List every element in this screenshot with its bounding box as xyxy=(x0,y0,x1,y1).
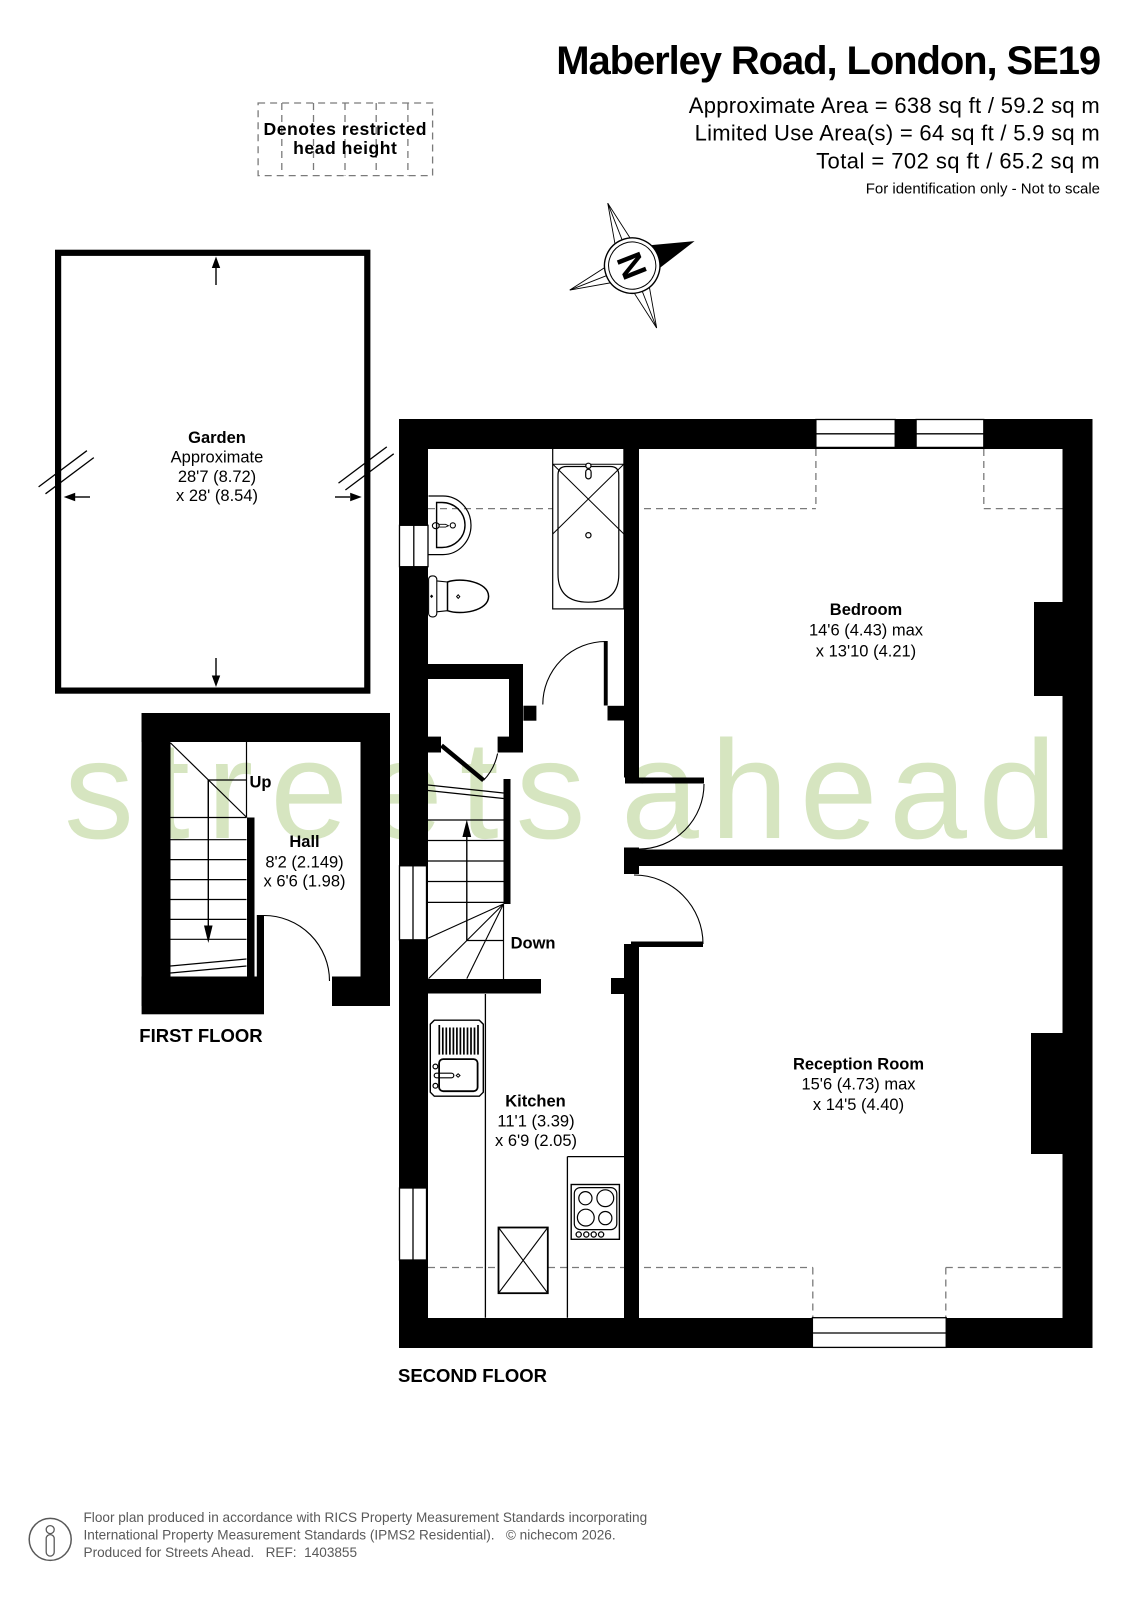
svg-text:head height: head height xyxy=(293,138,397,158)
svg-text:Reception Room: Reception Room xyxy=(793,1056,924,1074)
svg-text:14'6 (4.43) max: 14'6 (4.43) max xyxy=(809,622,924,640)
svg-text:Bedroom: Bedroom xyxy=(830,601,902,619)
svg-text:Hall: Hall xyxy=(289,833,319,851)
svg-text:Approximate: Approximate xyxy=(171,449,264,467)
svg-text:Floor plan produced in accorda: Floor plan produced in accordance with R… xyxy=(84,1510,648,1525)
svg-text:Limited Use Area(s) = 64 sq ft: Limited Use Area(s) = 64 sq ft / 5.9 sq … xyxy=(695,121,1100,146)
svg-text:Down: Down xyxy=(511,935,556,953)
svg-text:For identification only - Not: For identification only - Not to scale xyxy=(866,181,1100,198)
svg-text:Total = 702 sq ft / 65.2 sq m: Total = 702 sq ft / 65.2 sq m xyxy=(816,149,1100,174)
svg-text:FIRST FLOOR: FIRST FLOOR xyxy=(139,1025,262,1046)
svg-text:Approximate Area = 638 sq ft /: Approximate Area = 638 sq ft / 59.2 sq m xyxy=(689,93,1100,118)
svg-text:International Property Measure: International Property Measurement Stand… xyxy=(84,1528,616,1543)
svg-text:Up: Up xyxy=(250,774,272,792)
svg-text:x 6'9 (2.05): x 6'9 (2.05) xyxy=(495,1132,577,1150)
svg-text:15'6 (4.73) max: 15'6 (4.73) max xyxy=(801,1076,916,1094)
svg-text:x 28' (8.54): x 28' (8.54) xyxy=(176,487,258,505)
svg-text:Denotes restricted: Denotes restricted xyxy=(264,119,428,139)
svg-text:Maberley Road, London, SE19: Maberley Road, London, SE19 xyxy=(556,39,1100,83)
svg-text:x 14'5 (4.40): x 14'5 (4.40) xyxy=(813,1096,904,1114)
svg-text:SECOND FLOOR: SECOND FLOOR xyxy=(398,1365,547,1386)
svg-text:8'2 (2.149): 8'2 (2.149) xyxy=(265,854,343,872)
svg-text:Produced for Streets Ahead.: Produced for Streets Ahead. REF: 1403855 xyxy=(84,1545,358,1560)
svg-text:x 13'10 (4.21): x 13'10 (4.21) xyxy=(816,643,916,661)
svg-text:Garden: Garden xyxy=(188,429,246,447)
svg-text:x 6'6 (1.98): x 6'6 (1.98) xyxy=(263,873,345,891)
svg-text:ahead: ahead xyxy=(621,711,1068,868)
svg-text:Kitchen: Kitchen xyxy=(505,1093,566,1111)
svg-text:28'7 (8.72): 28'7 (8.72) xyxy=(178,468,256,486)
svg-text:11'1 (3.39): 11'1 (3.39) xyxy=(497,1113,574,1131)
